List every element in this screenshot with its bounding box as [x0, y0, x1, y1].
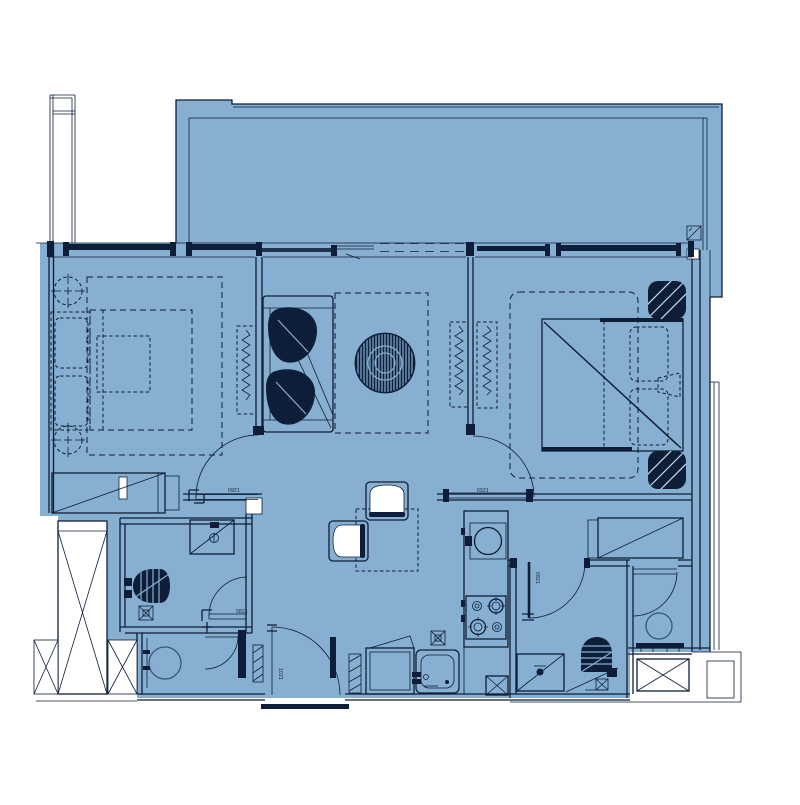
window-right-2 — [561, 245, 676, 251]
door-size-label: 1021 — [277, 668, 283, 680]
window-right-1 — [477, 246, 545, 251]
entry-jamb-bar — [330, 637, 336, 678]
shaft-bottom-right — [637, 659, 689, 691]
shaft-left-large — [58, 521, 107, 694]
door-size-label: 0821 — [534, 572, 540, 584]
floor-fill — [28, 100, 722, 712]
window-left-1 — [68, 244, 172, 250]
shaft-left-edge — [34, 640, 58, 694]
duct-box — [707, 661, 734, 698]
floor-plan-drawing: 0921 0921 0821 0821 1021 — [0, 0, 800, 800]
floor-plan-page: 0921 0921 0821 0821 1021 — [0, 0, 800, 800]
pocket-door-leaf — [238, 630, 246, 678]
window-left-2 — [190, 244, 258, 250]
shaft-left-small — [108, 640, 137, 694]
neighbor-balcony-outline — [50, 95, 75, 243]
door-size-label: 0821 — [236, 609, 248, 615]
entry-threshold — [261, 704, 349, 709]
shelf — [636, 643, 684, 648]
door-size-label: 0921 — [228, 488, 240, 494]
round-rug — [355, 333, 415, 393]
door-size-label: 0921 — [477, 488, 489, 494]
